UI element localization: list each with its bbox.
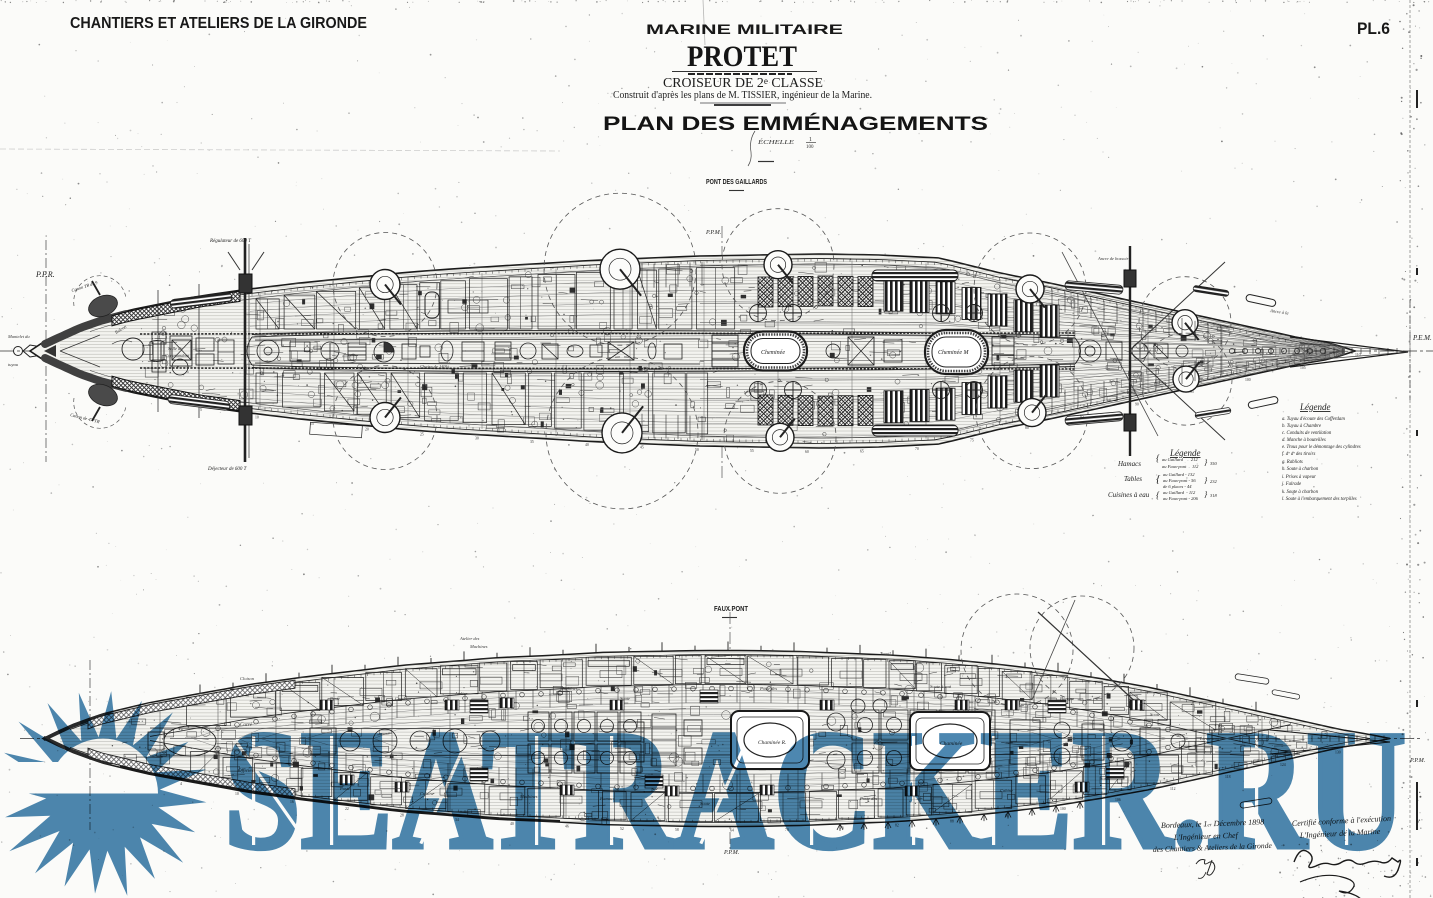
svg-text:Commandant: Commandant: [165, 353, 190, 358]
svg-text:50: 50: [695, 448, 699, 452]
svg-text:20: 20: [365, 428, 369, 432]
svg-text:P.P.M.: P.P.M.: [1409, 758, 1425, 764]
svg-text:CHANTIERS ET ATELIERS DE LA GI: CHANTIERS ET ATELIERS DE LA GIRONDE: [70, 15, 367, 32]
svg-text:318: 318: [1210, 493, 1218, 498]
svg-text:Ancre de bossoir: Ancre de bossoir: [1097, 256, 1129, 261]
svg-text:FAUX PONT: FAUX PONT: [714, 604, 748, 613]
svg-text:Salle de: Salle de: [168, 346, 182, 351]
svg-text:au Faux-pont - 56: au Faux-pont - 56: [1163, 478, 1196, 483]
svg-text:4: 4: [180, 782, 182, 786]
svg-text:Hamacs: Hamacs: [1117, 460, 1141, 468]
svg-text:tuyau: tuyau: [8, 362, 19, 367]
svg-text:PLAN DES EMMÉNAGEMENTS: PLAN DES EMMÉNAGEMENTS: [603, 112, 988, 135]
svg-text:350: 350: [1210, 461, 1218, 466]
svg-text:de 6 places - 44: de 6 places - 44: [1163, 484, 1192, 489]
svg-text:Chaise de 140⅓: Chaise de 140⅓: [420, 364, 450, 369]
svg-text:Cloison: Cloison: [240, 676, 255, 681]
svg-text:au Gaillard - 112: au Gaillard - 112: [1163, 490, 1196, 495]
svg-text:55: 55: [750, 449, 754, 453]
svg-text:Machines: Machines: [559, 686, 578, 691]
svg-text:au Faux-pont . 112: au Faux-pont . 112: [1162, 464, 1199, 469]
svg-text:CROISEUR DE 2e CLASSE: CROISEUR DE 2e CLASSE: [663, 75, 823, 90]
svg-text:PONT DES GAILLARDS: PONT DES GAILLARDS: [706, 177, 767, 186]
svg-text:au Faux-pont - 206: au Faux-pont - 206: [1163, 496, 1199, 501]
svg-text:l. Soute à l'embarquement des: l. Soute à l'embarquement des torpilles: [1282, 497, 1357, 502]
svg-text:110: 110: [1355, 353, 1361, 357]
svg-text:1: 1: [809, 137, 812, 143]
svg-text:25: 25: [420, 433, 424, 437]
svg-text:Déjecteur de 600 T: Déjecteur de 600 T: [207, 467, 248, 472]
svg-text:}: }: [1204, 458, 1208, 467]
svg-text:ÉCHELLE: ÉCHELLE: [757, 138, 794, 146]
svg-text:Atelier des: Atelier des: [459, 636, 480, 641]
svg-text:Treuil: Treuil: [880, 651, 891, 656]
svg-text:Cuisines à eau: Cuisines à eau: [1108, 491, 1150, 499]
svg-text:P.P.M.: P.P.M.: [705, 230, 721, 236]
svg-text:30: 30: [475, 437, 479, 441]
svg-text:au Gaillard . 212: au Gaillard . 212: [1162, 457, 1198, 462]
svg-text:35: 35: [530, 440, 534, 444]
svg-text:}: }: [1204, 490, 1208, 499]
svg-text:{: {: [1156, 490, 1160, 500]
svg-text:60: 60: [805, 450, 809, 454]
svg-text:Légende: Légende: [1299, 402, 1331, 412]
svg-text:Construit d'après les plans de: Construit d'après les plans de M. TISSIE…: [613, 90, 872, 101]
svg-text:i. Prises à vapeur: i. Prises à vapeur: [1282, 475, 1316, 480]
svg-text:PL.6: PL.6: [1357, 19, 1390, 38]
svg-text:e. Trous pour le démontage de: e. Trous pour le démontage des cylindres: [1282, 445, 1361, 450]
svg-text:90: 90: [1135, 402, 1139, 406]
svg-text:Poste des: Poste des: [759, 686, 777, 691]
svg-text:{: {: [1156, 473, 1161, 485]
svg-text:Mantelet du: Mantelet du: [7, 334, 30, 339]
svg-text:a. Tuyau d'écoute des Cofferd: a. Tuyau d'écoute des Cofferdam: [1282, 417, 1345, 422]
svg-text:85: 85: [1080, 414, 1084, 418]
svg-text:PROTET: PROTET: [687, 40, 797, 73]
svg-text:}: }: [1204, 476, 1208, 485]
svg-text:c. Conduits de ventilation: c. Conduits de ventilation: [1282, 431, 1332, 436]
svg-text:40: 40: [585, 443, 589, 447]
svg-text:Tables: Tables: [1124, 475, 1142, 483]
svg-text:Machines: Machines: [469, 644, 488, 649]
svg-text:g. Rabliots: g. Rabliots: [1282, 460, 1303, 465]
svg-text:au Gaillard - 132: au Gaillard - 132: [1163, 472, 1195, 477]
svg-text:P.E.M.: P.E.M.: [1412, 334, 1432, 342]
svg-text:45: 45: [640, 446, 644, 450]
svg-text:Soute à eau: Soute à eau: [930, 684, 952, 689]
svg-text:f. dº dº: f. dº dº des tiroirs: [1282, 451, 1315, 457]
svg-text:5: 5: [200, 408, 202, 412]
svg-text:Cheminée M: Cheminée M: [938, 350, 969, 356]
svg-text:95: 95: [1190, 390, 1194, 394]
svg-text:Cheminée: Cheminée: [761, 350, 785, 356]
svg-text:j. Falrade: j. Falrade: [1281, 482, 1302, 487]
svg-text:P.P.R.: P.P.R.: [35, 270, 55, 279]
svg-text:Régulateur de 600 T: Régulateur de 600 T: [209, 239, 252, 244]
svg-text:b. Tuyau à Chambre: b. Tuyau à Chambre: [1282, 424, 1322, 429]
svg-text:Ancre à la: Ancre à la: [1269, 308, 1290, 316]
svg-text:d. Manche à bouteilles: d. Manche à bouteilles: [1282, 438, 1326, 443]
svg-text:MARINE MILITAIRE: MARINE MILITAIRE: [646, 22, 843, 37]
svg-text:h. Soute à charbon: h. Soute à charbon: [1282, 467, 1319, 472]
svg-text:10: 10: [255, 416, 259, 420]
svg-text:{: {: [1156, 453, 1160, 463]
svg-text:100: 100: [1245, 378, 1251, 382]
svg-text:70: 70: [915, 447, 919, 451]
svg-text:105: 105: [1300, 366, 1306, 370]
svg-text:80: 80: [1025, 426, 1029, 430]
svg-text:k. Soute à charbon: k. Soute à charbon: [1282, 490, 1319, 495]
svg-text:100: 100: [806, 145, 814, 150]
svg-text:232: 232: [1210, 479, 1218, 484]
svg-text:15: 15: [310, 422, 314, 426]
svg-text:SEATRACKER.RU: SEATRACKER.RU: [224, 696, 1406, 884]
svg-text:75: 75: [970, 439, 974, 443]
svg-text:65: 65: [860, 449, 864, 453]
